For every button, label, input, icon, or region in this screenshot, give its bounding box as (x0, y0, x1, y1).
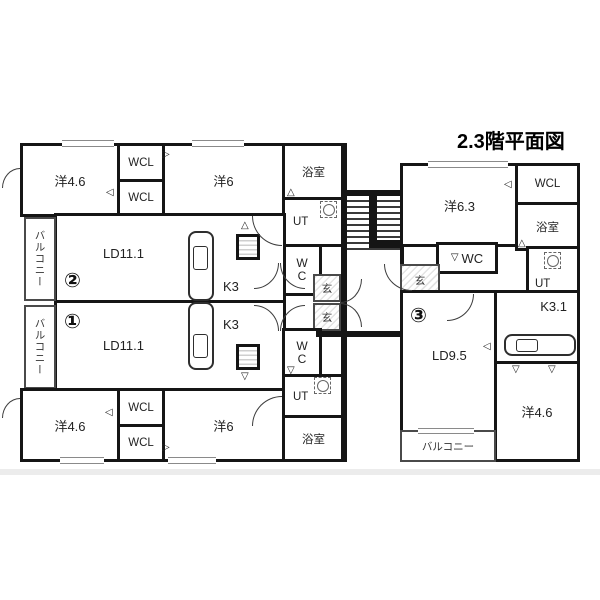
balcony-label: バルコニー (33, 318, 48, 376)
room-label: 洋6 (213, 171, 233, 190)
room-label: WCL (128, 157, 154, 169)
closet-door-icon: ◁ (105, 408, 113, 418)
window (62, 140, 114, 147)
washing-machine-icon (314, 377, 331, 394)
entry-door-arc-unit1 (340, 303, 362, 327)
kitchen-sink-unit3 (516, 339, 538, 352)
window (168, 457, 216, 464)
entry-unit1: 玄 (313, 303, 341, 331)
room-label: 洋6.3 (444, 196, 475, 215)
door-triangle-icon: ▽ (241, 372, 249, 382)
room-label: 洋4.6 (54, 171, 85, 190)
room-bath-bottom: 浴室 (282, 415, 345, 462)
room-label: WCL (535, 178, 561, 190)
page-divider (0, 469, 600, 475)
room-label: WCL (128, 437, 154, 449)
room-label: 洋4.6 (54, 416, 85, 435)
balcony-unit2: バルコニー (24, 217, 56, 301)
unit1-marker: ① (64, 312, 81, 332)
entry-door-arc-unit3 (384, 264, 412, 291)
room-west46-right: 洋4.6 (494, 361, 580, 462)
room-label: UT (293, 391, 308, 403)
unit3-marker: ③ (410, 306, 427, 326)
window (428, 161, 508, 168)
ld1-label: LD11.1 (103, 338, 144, 353)
balcony-unit1: バルコニー (24, 305, 56, 389)
closet-door-icon: ◁ (483, 342, 491, 352)
closet-door-icon: ◁ (106, 188, 114, 198)
staircase-divider (369, 196, 377, 246)
room-west46-top: 洋4.6 (20, 143, 120, 217)
room-wcl-top-b: WCL (117, 179, 165, 217)
room-label: WCL (128, 402, 154, 414)
room-label: K3.1 (540, 299, 567, 314)
door-arc (2, 168, 20, 188)
kitchen-sink-unit2 (193, 246, 208, 270)
room-label: UT (535, 278, 550, 290)
closet-door-icon: ▽ (512, 365, 520, 375)
kitchen1-label: K3 (223, 317, 239, 332)
balcony-unit3: バルコニー (400, 430, 496, 462)
room-west46-bottom: 洋4.6 (20, 388, 120, 462)
folding-door-icon: △ (518, 239, 526, 249)
room-label: WC (462, 251, 484, 266)
balcony-label: バルコニー (33, 230, 48, 288)
room-west63: 洋6.3 (400, 163, 519, 247)
entry-label: 玄 (415, 273, 426, 288)
ld3-label: LD9.5 (432, 348, 467, 363)
room-wcl-right: WCL (515, 163, 580, 205)
entry-door-arc-unit2 (340, 279, 362, 303)
plan-title: 2.3階平面図 (457, 125, 565, 154)
room-wc-right: ▽ WC (436, 242, 498, 274)
door-triangle-icon: △ (241, 221, 249, 231)
water-heater-unit2 (236, 234, 260, 260)
folding-door-icon: ▽ (287, 366, 295, 376)
door-arc (2, 398, 20, 418)
room-wcl-bottom-a: WCL (117, 388, 165, 427)
entry-label: 玄 (322, 281, 333, 296)
room-label: 浴室 (536, 219, 559, 235)
room-label: WC (295, 340, 310, 365)
room-label: 浴室 (302, 431, 325, 447)
room-wcl-top-a: WCL (117, 143, 165, 182)
ld2-label: LD11.1 (103, 246, 144, 261)
staircase-landing-wall (369, 240, 402, 248)
water-heater-unit1 (236, 344, 260, 370)
corridor-bottom-wall (316, 331, 404, 337)
room-label: 浴室 (302, 164, 325, 180)
room-label: UT (293, 216, 308, 228)
window (418, 428, 474, 434)
kitchen2-label: K3 (223, 279, 239, 294)
room-label: WCL (128, 192, 154, 204)
closet-door-icon: ▷ (162, 150, 170, 160)
folding-door-icon: △ (287, 188, 295, 198)
kitchen-counter-unit3 (504, 334, 576, 356)
room-wcl-bottom-b: WCL (117, 424, 165, 462)
room-label: 洋4.6 (521, 402, 552, 421)
entry-label: 玄 (322, 310, 333, 325)
balcony-label: バルコニー (422, 439, 474, 454)
room-label: 洋6 (213, 416, 233, 435)
closet-door-icon: ▷ (162, 443, 170, 453)
entry-unit2: 玄 (313, 274, 341, 302)
room-west6-top: 洋6 (162, 143, 285, 217)
unit2-marker: ② (64, 271, 81, 291)
closet-door-icon: ◁ (504, 180, 512, 190)
kitchen-sink-unit1 (193, 334, 208, 358)
window (60, 457, 104, 464)
door-triangle-icon: ▽ (451, 253, 459, 263)
floor-plan: 2.3階平面図 洋4.6 WCL WCL 洋6 浴室 UT WC LD11.1 … (0, 0, 600, 600)
washing-machine-icon (320, 201, 337, 218)
washing-machine-icon (544, 252, 561, 269)
window (192, 140, 244, 147)
closet-door-icon: ▽ (548, 365, 556, 375)
